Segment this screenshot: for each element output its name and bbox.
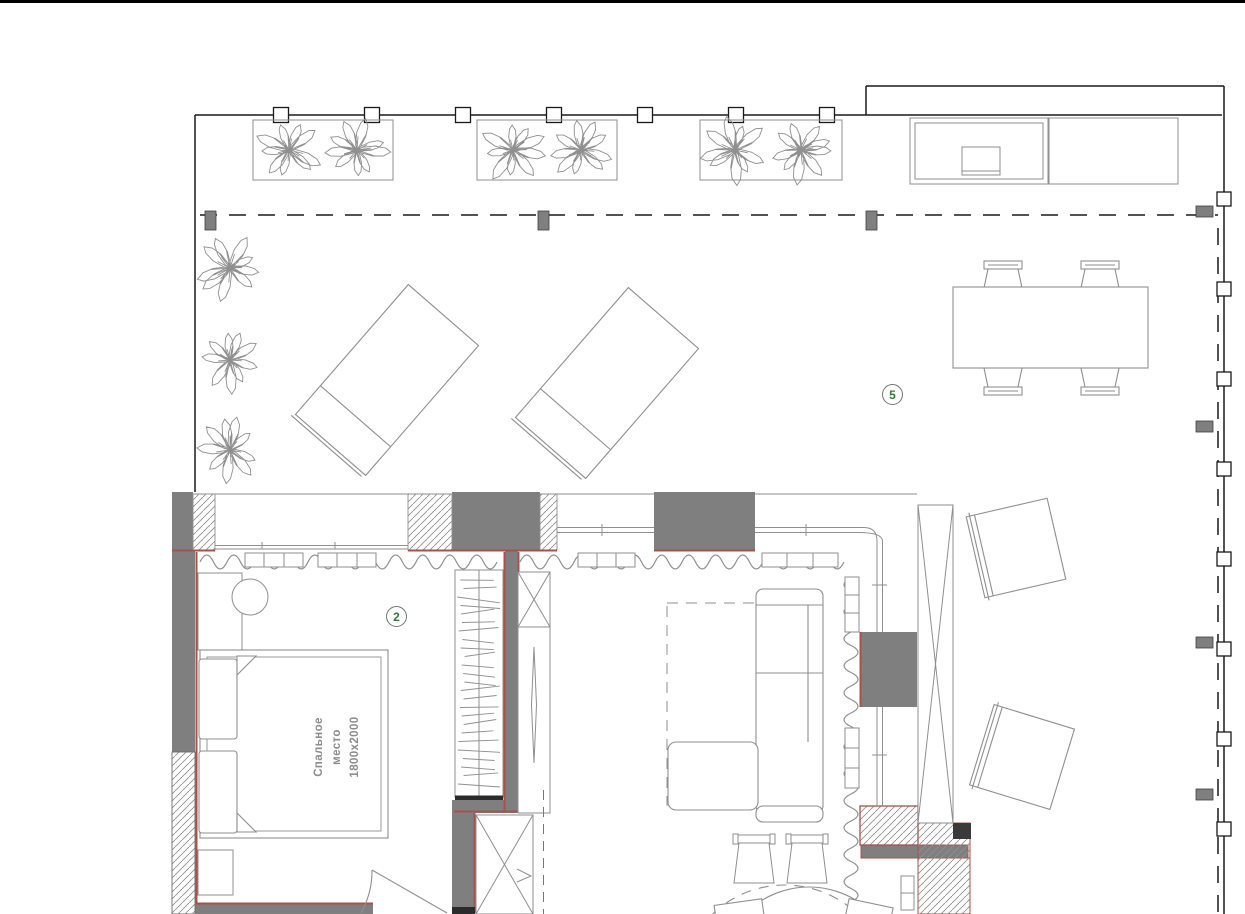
bed-label-line1: Спальное bbox=[311, 687, 329, 807]
stool-icon bbox=[232, 579, 268, 615]
sliding-door-icon bbox=[518, 627, 550, 813]
nightstand-icon bbox=[198, 850, 233, 895]
plant-icons bbox=[197, 117, 831, 484]
kitchen-unit-icon bbox=[910, 118, 1178, 184]
partition-x-icon bbox=[918, 505, 953, 823]
wall-corner-block bbox=[953, 823, 971, 839]
lounger-icon bbox=[291, 283, 698, 481]
door-swing-icon bbox=[361, 870, 447, 913]
cabinet-x-icon bbox=[476, 815, 533, 914]
dining-table-icon bbox=[953, 261, 1148, 395]
wall-end-block bbox=[452, 907, 475, 914]
chair-icon bbox=[984, 261, 1119, 288]
bedroom-number: 2 bbox=[393, 610, 400, 624]
room-number-badge-bedroom: 2 bbox=[386, 606, 407, 627]
chair-icon bbox=[984, 368, 1119, 395]
bed-label-line3: 1800х2000 bbox=[347, 687, 365, 807]
floor-plan-drawing bbox=[0, 0, 1245, 914]
vanity-desk bbox=[198, 573, 268, 650]
planter-boxes bbox=[253, 120, 842, 180]
floor-plan: 2 5 Спальное место 1800х2000 bbox=[0, 0, 1245, 914]
terrace-number: 5 bbox=[889, 388, 896, 402]
pillow-icon bbox=[199, 751, 237, 833]
wardrobe-base-line bbox=[455, 796, 503, 801]
column-x-icon bbox=[518, 572, 550, 627]
pillow-icon bbox=[199, 659, 237, 739]
armchair-icon bbox=[965, 495, 1075, 813]
chair-icon bbox=[733, 834, 828, 883]
round-table-icon bbox=[680, 885, 899, 914]
room-number-badge-terrace: 5 bbox=[882, 384, 903, 405]
sofa-icon bbox=[668, 589, 823, 822]
bed-dimension-label: Спальное место 1800х2000 bbox=[311, 687, 371, 807]
bed-label-line2: место bbox=[329, 687, 347, 807]
top-edge-line bbox=[0, 0, 1245, 3]
